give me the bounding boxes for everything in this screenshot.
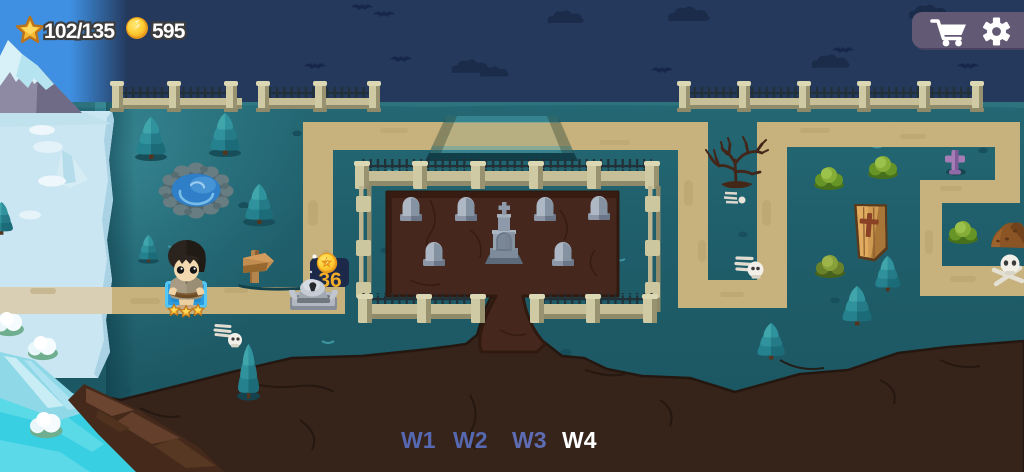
svg-text:W4: W4 xyxy=(562,427,597,453)
svg-text:595: 595 xyxy=(152,20,186,43)
svg-text:W2: W2 xyxy=(453,427,488,453)
svg-text:W3: W3 xyxy=(512,427,547,453)
svg-text:102/135: 102/135 xyxy=(44,20,115,43)
svg-text:W1: W1 xyxy=(401,427,436,453)
